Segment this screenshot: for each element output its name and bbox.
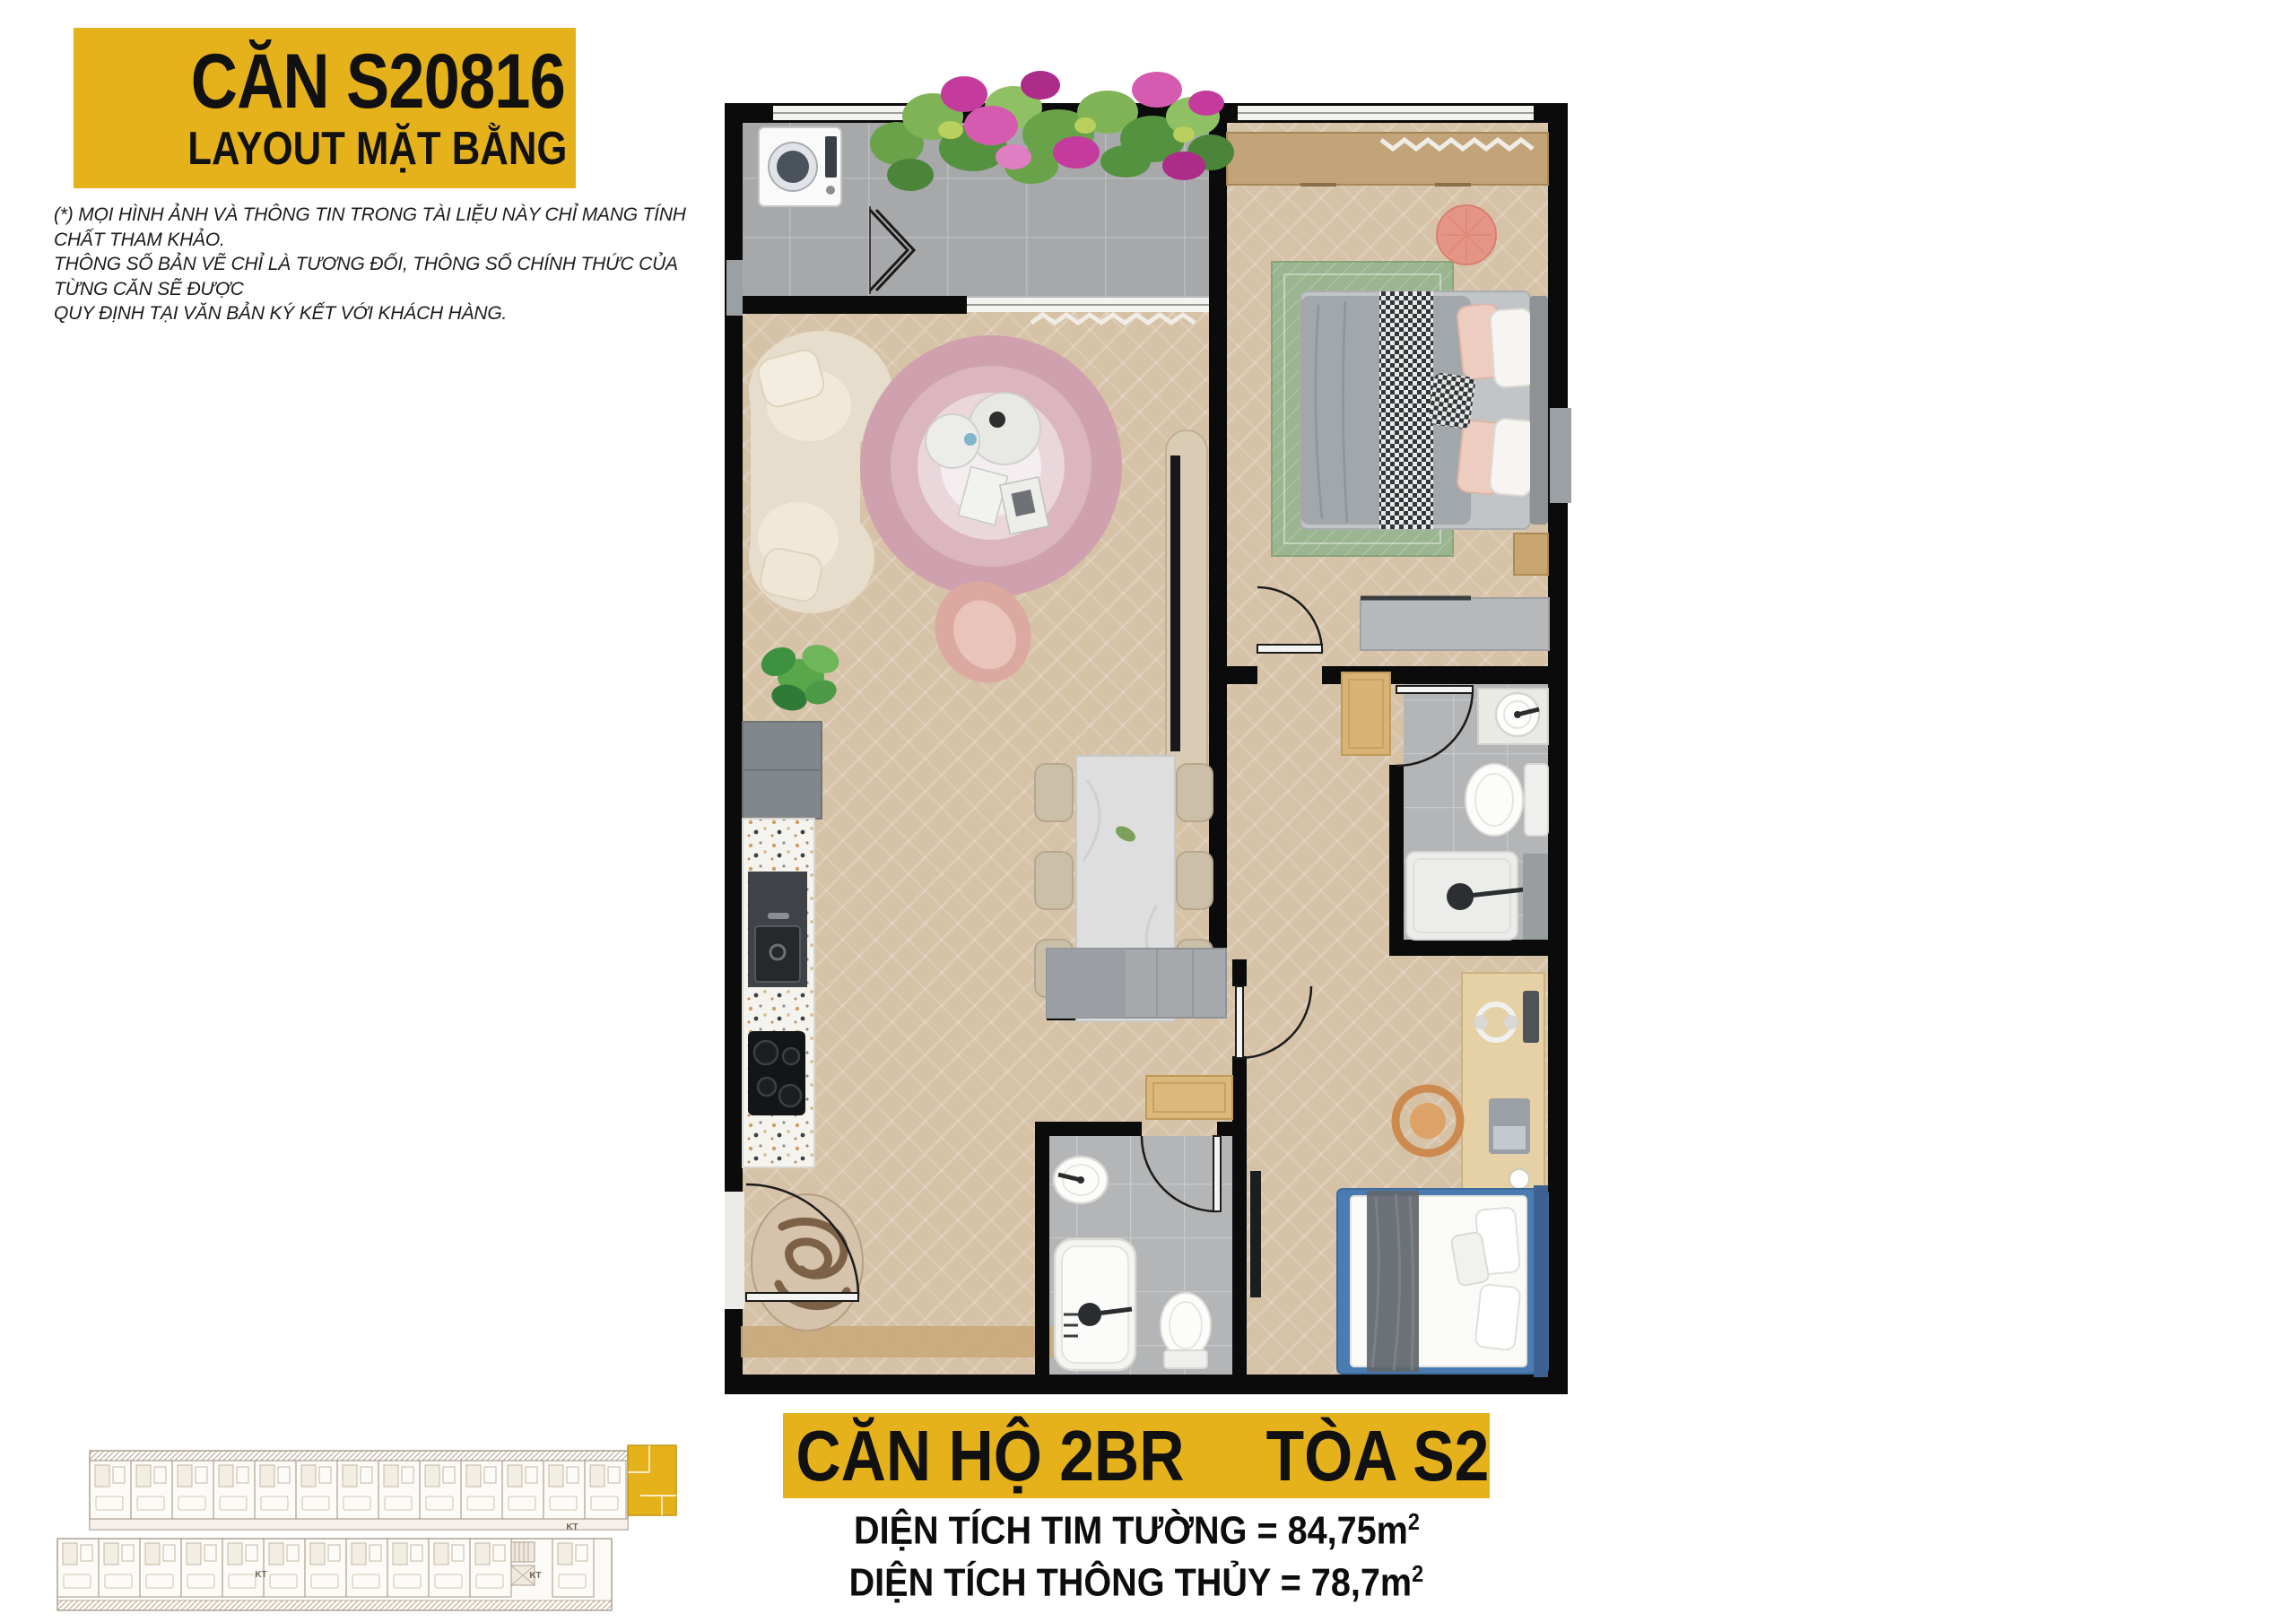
disclaimer-line-3: QUY ĐỊNH TẠI VĂN BẢN KÝ KẾT VỚI KHÁCH HÀ… (54, 301, 703, 326)
toilet-1 (1465, 764, 1548, 836)
round-rug (860, 335, 1122, 597)
sup-2: 2 (1407, 1508, 1419, 1535)
window-bedroom-1-top (1238, 106, 1534, 120)
disclaimer: (*) MỌI HÌNH ẢNH VÀ THÔNG TIN TRONG TÀI … (54, 203, 703, 326)
headboard-2 (1534, 1185, 1548, 1377)
kt-label: KT (255, 1570, 266, 1580)
highlighted-unit (628, 1445, 676, 1515)
tv-console (1166, 430, 1207, 802)
bathtub (1055, 1239, 1135, 1370)
area-thong-thuy: DIỆN TÍCH THÔNG THỦY = 78,7m2 (711, 1560, 1561, 1606)
kt-label: KT (566, 1522, 578, 1532)
pouf-lines (1441, 208, 1492, 262)
window-balcony-living (967, 298, 1209, 312)
tablet (1523, 991, 1539, 1043)
building-bottom-bar (57, 1539, 612, 1610)
unit-banner: CĂN HỘ 2BR TÒA S2 (783, 1413, 1490, 1498)
title-box: CĂN S20816 LAYOUT MẶT BẰNG (74, 28, 576, 188)
page-title: CĂN S20816 (190, 41, 564, 122)
tower-name: TÒA S2 (1266, 1420, 1490, 1492)
headboard (1530, 296, 1548, 525)
pillow-accent (1428, 372, 1476, 429)
unit-type: CĂN HỘ 2BR (796, 1420, 1184, 1492)
washing-machine (759, 127, 841, 206)
laptop (1489, 1098, 1530, 1154)
pedestal-sink (1054, 1157, 1108, 1203)
disclaimer-line-1: (*) MỌI HÌNH ẢNH VÀ THÔNG TIN TRONG TÀI … (54, 203, 703, 252)
toilet-2 (1161, 1293, 1211, 1368)
building-top-bar (90, 1451, 628, 1530)
ac-ledge-right (1550, 408, 1571, 503)
area-tim-tuong: DIỆN TÍCH TIM TƯỜNG = 84,75m2 (711, 1508, 1561, 1554)
ledge-left (726, 260, 743, 316)
nightstand (1514, 533, 1548, 575)
tv-bedroom-2 (1250, 1171, 1261, 1297)
dresser (1361, 598, 1549, 650)
entry-mat (741, 1326, 1058, 1357)
sink-unit (748, 872, 807, 987)
entry-rug (752, 1194, 863, 1331)
shower (1406, 852, 1534, 940)
floor-plan (700, 36, 1596, 1408)
pillow-white (1474, 1284, 1520, 1350)
shower-niche (1523, 854, 1548, 940)
entry (752, 1194, 863, 1331)
brochure-page: CĂN S20816 LAYOUT MẶT BẰNG (*) MỌI HÌNH … (0, 0, 2296, 1622)
entry-threshold (725, 1192, 744, 1309)
bed-1 (1300, 291, 1548, 529)
key-plan: KT KT KT (45, 1435, 700, 1618)
pillow-white (1489, 418, 1536, 497)
disclaimer-line-2: THÔNG SỐ BẢN VẼ CHỈ LÀ TƯƠNG ĐỐI, THÔNG … (54, 252, 703, 301)
houndstooth-throw (1379, 291, 1433, 529)
kt-label: KT (529, 1571, 541, 1581)
closet (1047, 949, 1226, 1018)
cooktop (748, 1031, 805, 1115)
pillow-white (1490, 308, 1536, 388)
kitchen (743, 722, 822, 1167)
page-subtitle: LAYOUT MẶT BẰNG (187, 124, 567, 175)
flower-planter (870, 71, 1234, 191)
sup-2: 2 (1412, 1560, 1423, 1587)
bed-2 (1337, 1185, 1548, 1377)
mug (1509, 1169, 1529, 1189)
tv (1170, 455, 1180, 751)
